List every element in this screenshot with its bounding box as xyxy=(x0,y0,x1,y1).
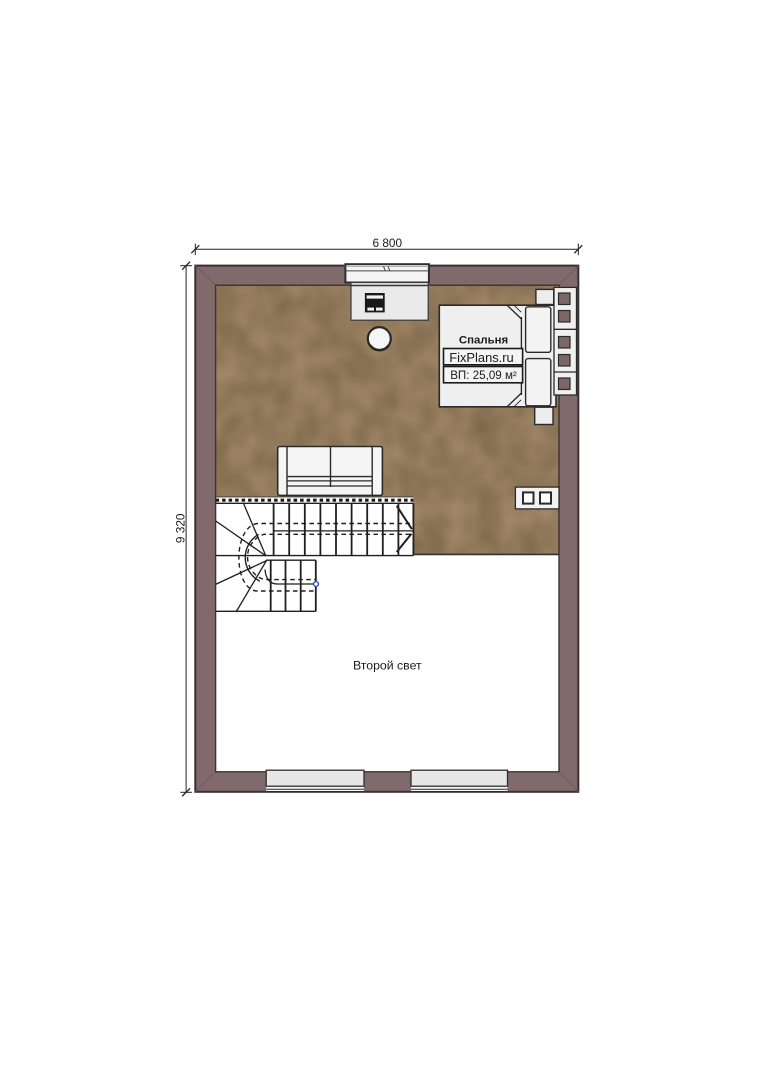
svg-text:FixPlans.ru: FixPlans.ru xyxy=(449,350,513,365)
svg-text:Второй свет: Второй свет xyxy=(353,659,422,673)
svg-text:Спальня: Спальня xyxy=(459,335,508,347)
svg-text:ВП: 25,09 м²: ВП: 25,09 м² xyxy=(450,369,517,382)
svg-text:9 320: 9 320 xyxy=(174,513,188,543)
svg-text:6 800: 6 800 xyxy=(373,236,403,250)
